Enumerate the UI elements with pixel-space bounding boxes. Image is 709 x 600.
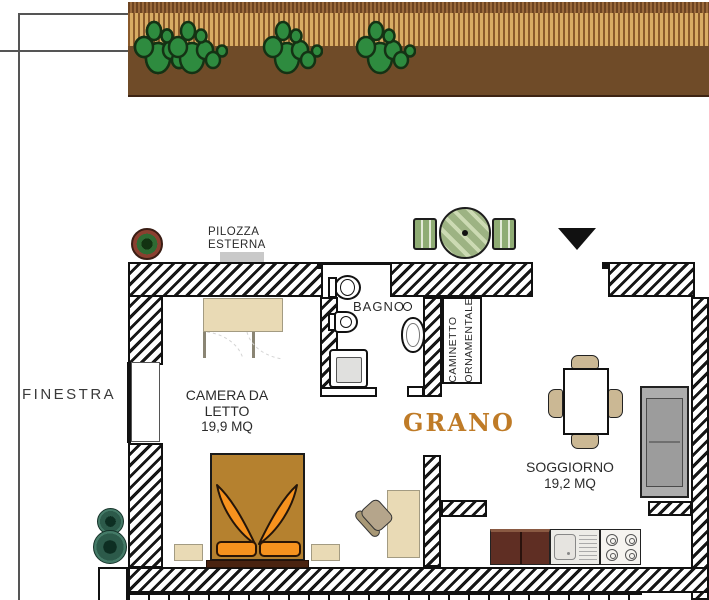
garden-fence-top: [128, 2, 709, 13]
wall-end-cap: [317, 262, 323, 269]
entrance-marker-icon: [558, 228, 596, 250]
shower-icon: [329, 349, 368, 388]
nightstand: [311, 544, 340, 561]
toilet-icon: [328, 275, 362, 301]
soggiorno-label: SOGGIORNO 19,2 MQ: [518, 460, 622, 491]
wall-right: [691, 297, 709, 600]
wall-left-lower: [128, 443, 163, 568]
soggiorno-area: 19,2 MQ: [544, 476, 596, 491]
dining-chair-icon: [548, 389, 563, 418]
dining-chair-icon: [608, 389, 623, 418]
bed-headboard: [206, 560, 309, 568]
caminetto-label: CAMINETTO ORNAMENTALE: [446, 298, 478, 383]
burner-icon: [625, 534, 637, 546]
wardrobe-door-swing: [205, 332, 283, 360]
dining-chair-icon: [571, 434, 599, 449]
patio-chair-icon: [413, 218, 437, 250]
site-boundary-line-upper: [0, 50, 128, 52]
washbasin-icon: [400, 300, 426, 354]
kitchen-cabinet: [490, 529, 550, 565]
wall-bedroom-right: [423, 455, 441, 567]
burner-icon: [606, 534, 618, 546]
bed: [210, 453, 305, 561]
wall-top-right: [608, 262, 695, 297]
burner-icon: [625, 549, 637, 561]
floor-plan: FINESTRA PILOZZAESTERNA BAGNO CAMINETTO …: [0, 0, 709, 600]
bagno-window-line: [323, 262, 390, 265]
plan-name: GRANO: [403, 410, 507, 437]
pillow: [216, 541, 257, 557]
dining-chair-icon: [571, 355, 599, 369]
finestra-label: FINESTRA: [22, 387, 116, 404]
burner-icon: [606, 549, 618, 561]
wall-end-cap: [602, 262, 608, 269]
wall-left-upper: [128, 295, 163, 365]
window-frame: [131, 362, 160, 442]
patio-chair-icon: [492, 218, 516, 250]
bagno-label: BAGNO: [353, 300, 405, 315]
cactus-icon: [162, 16, 228, 82]
bush-icon: [93, 530, 127, 564]
wall-sofa-stub: [648, 501, 692, 516]
window-mullion-strip: [128, 593, 642, 600]
wall-bottom: [128, 567, 709, 593]
kitchen-sink: [550, 529, 600, 565]
caminetto-label-box: CAMINETTO ORNAMENTALE: [442, 297, 482, 384]
bathroom-door-threshold: [320, 387, 377, 397]
pilozza-label: PILOZZAESTERNA: [208, 226, 266, 252]
wardrobe: [203, 298, 283, 332]
bidet-icon: [328, 311, 359, 334]
kitchen-stove: [600, 529, 641, 565]
site-boundary-line-vertical: [18, 13, 20, 600]
sofa: [640, 386, 689, 498]
wall-bedroom-stub: [441, 500, 487, 517]
dining-table: [563, 368, 609, 435]
patio-table-icon: [439, 207, 491, 259]
wall-top-middle: [390, 262, 533, 297]
camera-da-letto-label: CAMERA DA LETTO 19,9 MQ: [168, 388, 286, 435]
camera-area: 19,9 MQ: [201, 419, 253, 434]
bottom-left-pillar: [98, 567, 128, 600]
site-boundary-line-top: [18, 13, 128, 15]
pillow: [259, 541, 301, 557]
cactus-icon: [257, 16, 323, 82]
cactus-icon: [350, 16, 416, 82]
wall-top-left: [128, 262, 323, 297]
caminetto-wall-foot: [407, 386, 424, 397]
garden-strip: [128, 2, 709, 97]
nightstand: [174, 544, 203, 561]
potted-plant-icon: [131, 228, 163, 260]
kitchen-counter: [490, 529, 641, 566]
pilozza-sink: [220, 252, 264, 262]
